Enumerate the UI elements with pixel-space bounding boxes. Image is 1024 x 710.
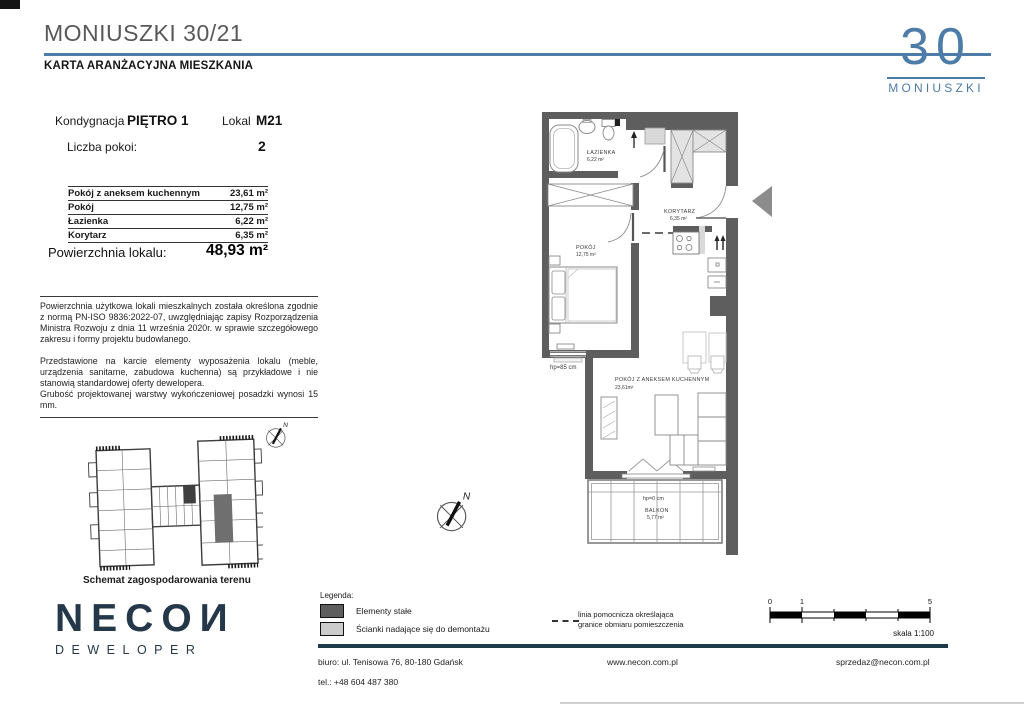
developer-logo-subtext: DEWELOPER xyxy=(55,643,236,657)
footer-website[interactable]: www.necon.com.pl xyxy=(607,657,678,667)
room-name: Pokój z aneksem kuchennym xyxy=(68,188,200,199)
door-pokoj xyxy=(608,213,633,242)
floor-plan: ŁAZIENKA 6,22 m² KORYTARZ 6,35 m² POKÓJ … xyxy=(530,100,780,570)
room-name: Korytarz xyxy=(68,230,107,241)
hp-label-balkon: hp=0 cm xyxy=(643,496,664,502)
bed-icon xyxy=(549,267,617,323)
sink-icon xyxy=(579,120,595,134)
compass-icon: N xyxy=(432,486,478,538)
room-label-pokoj: POKÓJ xyxy=(576,244,596,251)
radiator-icon xyxy=(557,344,574,349)
apartment-card-page: MONIUSZKI 30/21 KARTA ARANŻACYJNA MIESZK… xyxy=(0,0,1024,710)
liczba-pokoi-label: Liczba pokoi: xyxy=(67,140,137,154)
compass-icon: N xyxy=(263,418,293,452)
compass-n-label: N xyxy=(463,492,471,503)
wardrobe-korytarz-wide xyxy=(693,130,726,152)
legend-item-demountable: Ścianki nadające się do demontażu xyxy=(320,622,490,636)
developer-logo-text: NECOИ xyxy=(55,598,236,640)
room-area-lazienka: 6,22 m² xyxy=(587,157,604,163)
scale-label: skala 1:100 xyxy=(893,629,934,638)
scale-bar: 0 1 5 skala 1:100 xyxy=(760,596,942,640)
legend-swatch-dark xyxy=(320,604,344,618)
site-plan-map xyxy=(88,432,263,580)
room-area: 6,22 m² xyxy=(235,216,268,227)
legend-label: Elementy stałe xyxy=(356,606,412,616)
room-name: Pokój xyxy=(68,202,94,213)
room-label-salon: POKÓJ Z ANEKSEM KUCHENNYM xyxy=(615,376,710,383)
door-entrance xyxy=(696,186,726,218)
corner-mark xyxy=(0,0,20,9)
disclaimer-paragraph: Powierzchnia użytkowa lokali mieszkalnyc… xyxy=(40,301,318,345)
nightstand-icon xyxy=(549,256,560,265)
room-area: 23,61 m² xyxy=(230,188,268,199)
scale-tick-1: 1 xyxy=(800,597,804,606)
legend-dashed-note: linia pomocnicza określająca granice obm… xyxy=(578,610,683,630)
table-row: Korytarz 6,35 m² xyxy=(68,229,268,243)
highlighted-unit xyxy=(214,494,234,543)
table-row: Łazienka 6,22 m² xyxy=(68,215,268,229)
scale-tick-0: 0 xyxy=(768,597,772,606)
title-divider xyxy=(44,53,991,56)
room-name: Łazienka xyxy=(68,216,108,227)
table-icon xyxy=(655,395,678,435)
room-area-balkon: 5,77 m² xyxy=(647,515,664,521)
bathtub-icon xyxy=(550,125,578,172)
disclaimer-paragraph: Grubość projektowanej warstwy wykończeni… xyxy=(40,389,318,411)
door-bathroom xyxy=(640,146,665,177)
page-subtitle: KARTA ARANŻACYJNA MIESZKANIA xyxy=(44,60,253,72)
table-row: Pokój z aneksem kuchennym 23,61 m² xyxy=(68,187,268,201)
site-plan-caption: Schemat zagospodarowania terenu xyxy=(83,575,251,586)
sideboard-icon xyxy=(601,397,617,439)
kondygnacja-value: PIĘTRO 1 xyxy=(127,113,189,128)
hp-label-pokoj: hp=85 cm xyxy=(550,365,577,371)
entrance-arrow-icon xyxy=(752,186,772,217)
tv-shelf-icon xyxy=(693,467,715,471)
legend-swatch-light xyxy=(320,622,344,636)
lokal-label: Lokal xyxy=(222,114,251,128)
brand-logo-rule xyxy=(887,77,985,79)
legend-dashed-note-line1: linia pomocnicza określająca xyxy=(578,610,683,620)
legend-item-fixed: Elementy stałe xyxy=(320,604,412,618)
kitchen-cabinets xyxy=(708,258,726,288)
total-area-value: 48,93 m² xyxy=(170,242,268,260)
brand-logo: 30 MONIUSZKI xyxy=(884,18,988,95)
room-areas-table: Pokój z aneksem kuchennym 23,61 m² Pokój… xyxy=(68,186,268,243)
brand-logo-number: 30 xyxy=(884,18,988,76)
toilet-icon xyxy=(602,119,620,140)
legend-title: Legenda: xyxy=(320,591,353,600)
page-edge xyxy=(560,702,1024,704)
wardrobe-pokoj xyxy=(548,184,633,206)
room-area: 12,75 m² xyxy=(230,202,268,213)
room-area-salon: 23,61m² xyxy=(615,385,634,391)
vent-arrow-icon xyxy=(631,131,637,148)
wall-demountable xyxy=(645,128,665,144)
fridge-arrows-icon xyxy=(715,235,726,250)
footer-email[interactable]: sprzedaz@necon.com.pl xyxy=(836,657,930,667)
stove-icon xyxy=(673,232,699,254)
legend-dashed-note-line2: granice obmiaru pomieszczenia xyxy=(578,620,683,630)
developer-logo: NECOИ DEWELOPER xyxy=(55,598,236,657)
legend-dashed-line-sample xyxy=(552,620,579,622)
brand-logo-name: MONIUSZKI xyxy=(884,81,988,95)
room-area-korytarz: 6,35 m² xyxy=(670,216,687,222)
scale-tick-5: 5 xyxy=(928,597,932,606)
footer-divider xyxy=(318,644,948,648)
disclaimer-paragraph: Przedstawione na karcie elementy wyposaż… xyxy=(40,356,318,389)
wardrobe-korytarz-tall xyxy=(671,130,693,183)
nightstand-icon xyxy=(549,324,560,333)
room-label-lazienka: ŁAZIENKA xyxy=(587,150,616,156)
room-label-korytarz: KORYTARZ xyxy=(664,209,696,215)
footer-address: biuro: ul. Tenisowa 76, 80-180 Gdańsk xyxy=(318,657,463,667)
liczba-pokoi-value: 2 xyxy=(258,138,266,154)
legend-label: Ścianki nadające się do demontażu xyxy=(356,624,490,634)
page-title: MONIUSZKI 30/21 xyxy=(44,20,243,47)
wall-demountable xyxy=(699,226,705,254)
room-area-pokoj: 12,75 m² xyxy=(576,252,596,258)
footer-phone: tel.: +48 604 487 380 xyxy=(318,677,398,687)
disclaimer-block: Powierzchnia użytkowa lokali mieszkalnyc… xyxy=(40,296,318,418)
room-label-balkon: BALKON xyxy=(645,508,669,514)
lokal-value: M21 xyxy=(256,113,282,128)
compass-n-label: N xyxy=(283,422,288,429)
window-sill xyxy=(554,358,582,362)
table-row: Pokój 12,75 m² xyxy=(68,201,268,215)
total-area-label: Powierzchnia lokalu: xyxy=(48,245,167,260)
kondygnacja-label: Kondygnacja xyxy=(55,114,124,128)
room-area: 6,35 m² xyxy=(235,230,268,241)
